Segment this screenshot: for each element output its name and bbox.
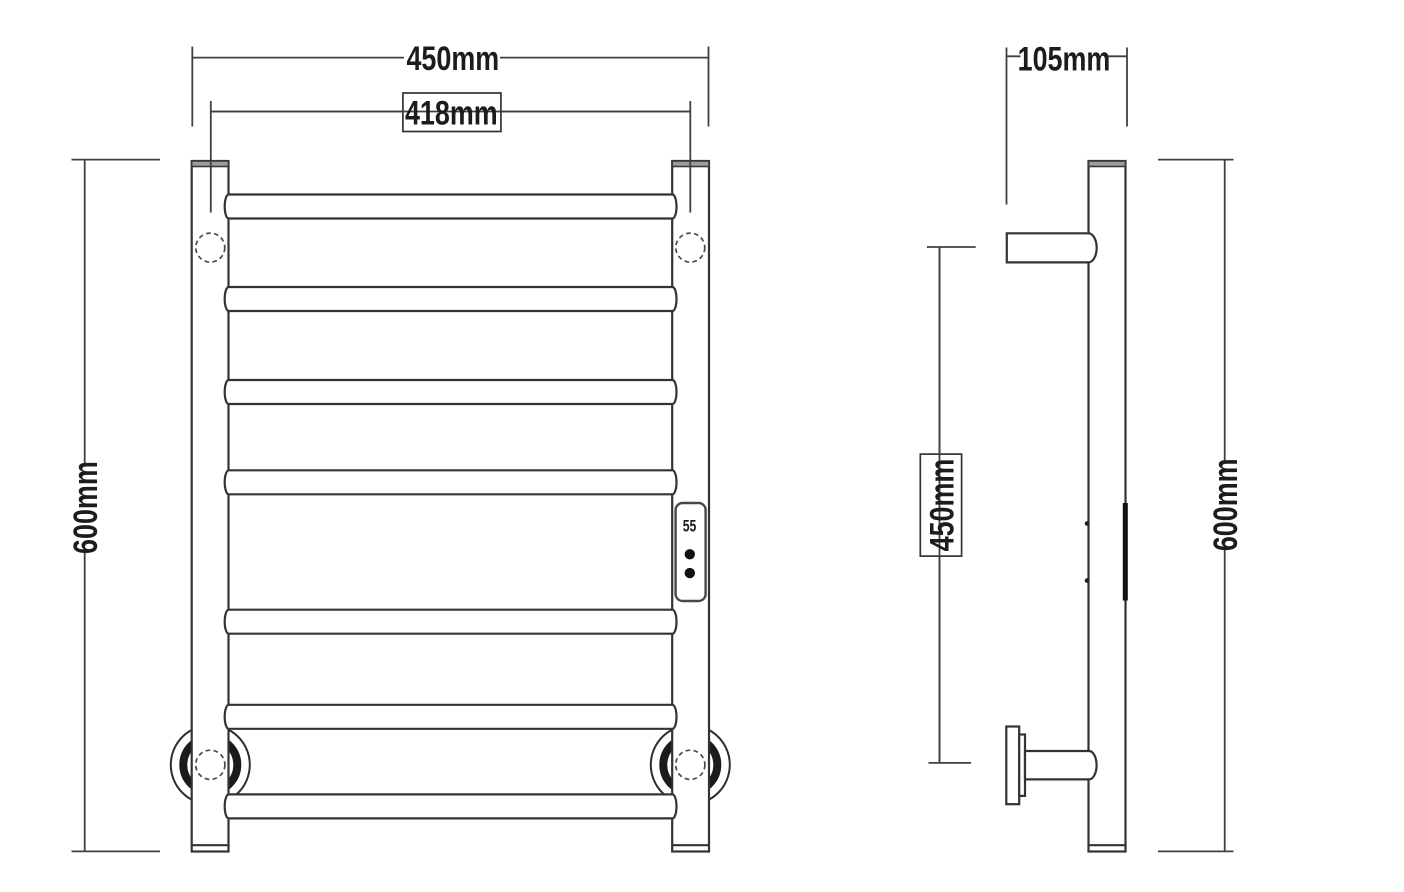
svg-text:450mm: 450mm: [922, 459, 961, 552]
svg-text:55: 55: [683, 518, 697, 536]
svg-text:600mm: 600mm: [66, 461, 105, 554]
svg-text:105mm: 105mm: [1018, 39, 1111, 78]
svg-text:450mm: 450mm: [406, 39, 499, 78]
svg-text:418mm: 418mm: [405, 93, 498, 132]
svg-text:600mm: 600mm: [1206, 458, 1245, 551]
